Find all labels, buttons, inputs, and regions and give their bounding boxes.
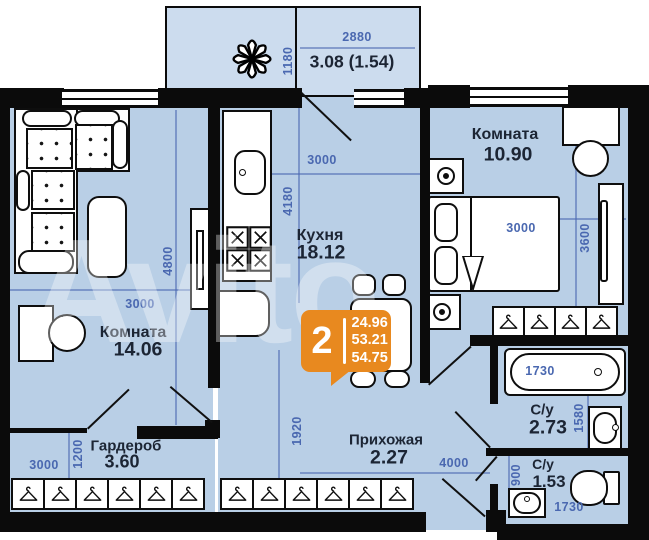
area-value: 54.75 [352, 350, 392, 368]
window [470, 87, 568, 107]
coffee-table [87, 196, 127, 278]
sofa-armrest [16, 170, 30, 211]
dimension-label: 4000 [439, 456, 468, 470]
wall [470, 335, 630, 346]
wall [158, 88, 220, 108]
sofa-seat [26, 128, 73, 169]
wall [490, 346, 498, 404]
wall [497, 524, 649, 540]
stool [352, 274, 376, 296]
burner-icon [226, 226, 249, 249]
dimension-label: 1730 [554, 500, 583, 514]
hanger-icon [585, 306, 618, 337]
sink-drain [239, 169, 246, 176]
wall [0, 88, 64, 108]
hanger-icon [492, 306, 525, 337]
dimension-label: 1920 [290, 416, 304, 445]
blanket-fold [462, 256, 484, 290]
dimension-label: 3600 [578, 223, 592, 252]
bedroom-area: 10.90 [484, 144, 533, 167]
stove [226, 226, 272, 272]
wall [0, 88, 10, 532]
badge-tail [331, 370, 351, 386]
hanger-icon [43, 478, 77, 510]
wall [428, 85, 470, 108]
hanger-icon [171, 478, 205, 510]
summary-badge: 2 24.96 53.21 54.75 [301, 310, 391, 372]
sofa-seat [75, 124, 113, 170]
hanger-icon [523, 306, 556, 337]
badge-areas: 24.96 53.21 54.75 [346, 315, 392, 368]
bedroom-label: Комната [472, 126, 538, 144]
balcony-divider [295, 8, 297, 93]
sofa-armrest [112, 120, 128, 169]
wall [490, 484, 498, 526]
hanger-icon [11, 478, 45, 510]
dim-line [298, 108, 300, 303]
hanger-icon [220, 478, 254, 510]
sofa-armrest [18, 250, 74, 274]
sofa-seat [31, 170, 75, 210]
dimension-label: 1180 [281, 47, 295, 76]
burner-icon [249, 226, 272, 249]
hanger-icon [252, 478, 286, 510]
dimension-label: 3000 [29, 458, 58, 472]
dimension-label: 3000 [307, 153, 336, 167]
hallway-hanger-row [222, 478, 414, 510]
window [62, 89, 158, 108]
dim-line [10, 289, 213, 291]
hanger-icon [284, 478, 318, 510]
pillow [434, 246, 458, 285]
tv-screen [600, 200, 608, 282]
burner-icon [249, 249, 272, 272]
hanger-icon [316, 478, 350, 510]
bedroom-chair [572, 140, 609, 177]
dim-line [300, 472, 490, 474]
dimension-label: 1730 [525, 364, 554, 378]
hanger-icon [107, 478, 141, 510]
lamp-icon [443, 173, 449, 179]
hanger-icon [348, 478, 382, 510]
snowflake-icon [226, 33, 278, 85]
wall [8, 428, 87, 433]
fridge [218, 290, 270, 337]
stool [384, 370, 410, 388]
hanger-icon [380, 478, 414, 510]
dimension-label: 4180 [281, 186, 295, 215]
dim-line [175, 110, 177, 425]
drain-icon [594, 368, 602, 376]
area-value: 24.96 [352, 315, 392, 333]
desk-chair [48, 314, 86, 352]
wall [218, 88, 302, 108]
floor-plan: 3.08 (1.54) Комната 14.06 Кухня 18.12 Ко… [0, 0, 649, 540]
area-value: 53.21 [352, 332, 392, 350]
pillow [434, 203, 458, 242]
dim-line [278, 350, 280, 478]
wall [420, 108, 430, 383]
hanger-icon [139, 478, 173, 510]
lamp-icon [439, 309, 445, 315]
dim-line [300, 47, 415, 49]
living-room-area: 14.06 [114, 339, 163, 362]
sofa-back-cushion [22, 110, 72, 127]
dimension-label: 3000 [125, 297, 154, 311]
wall [0, 512, 426, 532]
wall [208, 108, 220, 388]
kitchen-area: 18.12 [297, 242, 346, 265]
tap-icon [612, 424, 619, 431]
dimension-label: 3000 [506, 221, 535, 235]
wardrobe-hanger-row [13, 478, 205, 510]
wall [628, 105, 649, 540]
dimension-label: 900 [509, 464, 523, 486]
bedroom-hanger-row [494, 306, 618, 337]
bathroom-area: 2.73 [529, 417, 567, 440]
hallway-area: 2.27 [370, 447, 408, 470]
wc-label: С/у [532, 456, 554, 472]
dimension-label: 1580 [572, 403, 586, 432]
burner-icon [226, 249, 249, 272]
wardrobe-area: 3.60 [104, 452, 139, 473]
hanger-icon [75, 478, 109, 510]
sofa-seat [31, 212, 75, 252]
rooms-count: 2 [301, 322, 343, 360]
dimension-label: 1200 [71, 439, 85, 468]
stool [382, 274, 406, 296]
tv-screen [196, 230, 204, 290]
dimension-label: 2880 [342, 30, 371, 44]
tap-icon [524, 496, 530, 502]
hallway-floor [428, 346, 498, 512]
dim-line [68, 432, 70, 478]
dimension-label: 4800 [161, 246, 175, 275]
window [354, 89, 404, 108]
wc-area: 1.53 [532, 472, 565, 492]
wall [486, 448, 630, 456]
hanger-icon [554, 306, 587, 337]
stool [350, 370, 376, 388]
balcony-area-label: 3.08 (1.54) [310, 52, 395, 73]
